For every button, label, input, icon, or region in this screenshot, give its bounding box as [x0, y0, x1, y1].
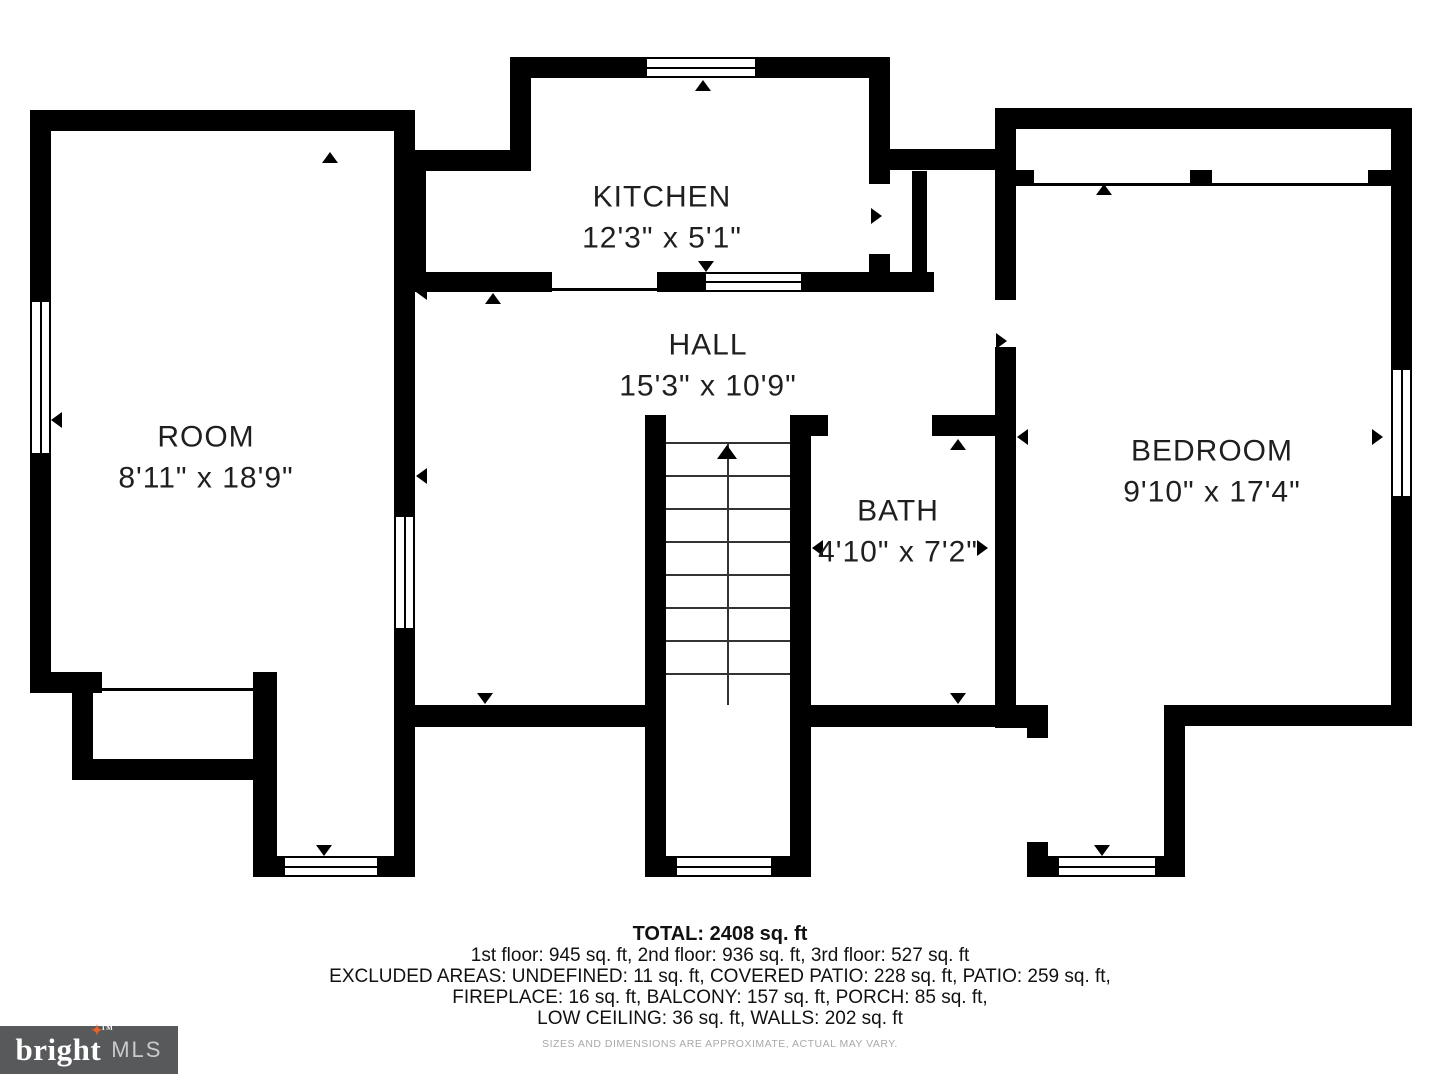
- room-name: KITCHEN: [593, 181, 732, 214]
- partition-line-low-ceiling-line: [1016, 183, 1391, 186]
- kitchen-window-arrow: [698, 261, 714, 272]
- excluded-areas-text-2: FIREPLACE: 16 sq. ft, BALCONY: 157 sq. f…: [0, 987, 1440, 1008]
- bedroom-dims-right-arrow: [1372, 429, 1383, 445]
- area-summary: TOTAL: 2408 sq. ft 1st floor: 945 sq. ft…: [0, 924, 1440, 1050]
- window-pane-line: [404, 517, 406, 628]
- left-porch-arrow: [316, 845, 332, 856]
- wall-bedroom-right-lower: [1391, 498, 1412, 726]
- room-left-window-arrow: [51, 412, 62, 428]
- room-top-door-arrow: [322, 152, 338, 163]
- room-dimensions: 8'11" x 18'9": [118, 462, 293, 496]
- disclaimer-text: SIZES AND DIMENSIONS ARE APPROXIMATE, AC…: [0, 1038, 1440, 1050]
- wall-lowceil-stub-a: [1016, 170, 1034, 183]
- kitchen-bottom-window: [704, 272, 803, 292]
- room-interior-window: [394, 515, 415, 630]
- window-pane-line: [647, 67, 755, 69]
- wall-hall-bottom-left: [415, 705, 645, 727]
- excluded-areas-text-1: EXCLUDED AREAS: UNDEFINED: 11 sq. ft, CO…: [0, 966, 1440, 987]
- bright-mls-logo: bright✦TM MLS: [0, 1026, 178, 1074]
- wall-bedroom-left-lower: [995, 347, 1016, 727]
- wall-vestibule-top: [869, 149, 1016, 170]
- kitchen-right-door-arrow: [871, 208, 882, 224]
- wall-lowceil-stub-b: [1190, 170, 1212, 183]
- bedroom-dims-left-arrow: [1017, 429, 1028, 445]
- partition-line-balcony-open-line: [93, 688, 253, 691]
- window-pane-line: [677, 866, 771, 868]
- window-pane-line: [706, 281, 801, 283]
- window-pane-line: [1059, 866, 1155, 868]
- wall-stair-left: [645, 415, 666, 877]
- room-name: HALL: [668, 329, 747, 362]
- kitchen-top-window: [645, 57, 757, 78]
- room-dimensions: 4'10" x 7'2": [818, 536, 978, 570]
- bedroom-right-window: [1391, 368, 1412, 498]
- room-label-bedroom: BEDROOM9'10" x 17'4": [1123, 435, 1301, 510]
- wall-bedroom-step-v: [1027, 705, 1048, 738]
- wall-room-bottom-step-h: [30, 672, 102, 693]
- wall-stair-right: [790, 415, 811, 877]
- right-porch-arrow: [1094, 845, 1110, 856]
- room-label-room: ROOM8'11" x 18'9": [118, 421, 293, 496]
- room-label-hall: HALL15'3" x 10'9": [619, 329, 797, 404]
- wall-balcony-bottom: [72, 759, 277, 780]
- bedroom-door-arrow: [996, 333, 1007, 349]
- room-label-bath: BATH4'10" x 7'2": [818, 495, 978, 570]
- room-name: ROOM: [157, 421, 254, 454]
- low-ceiling-arrow: [1096, 184, 1112, 195]
- right-porch-window: [1057, 856, 1157, 877]
- wall-bedroom-bottom: [1164, 705, 1412, 726]
- excluded-areas-text-3: LOW CEILING: 36 sq. ft, WALLS: 202 sq. f…: [0, 1008, 1440, 1029]
- bath-bottom-arrow: [950, 693, 966, 704]
- wall-balcony-right: [253, 672, 277, 877]
- bath-dims-right-arrow: [977, 540, 988, 556]
- wall-kitchen-bottom-a: [405, 272, 552, 292]
- room-dimensions: 9'10" x 17'4": [1123, 476, 1301, 510]
- wall-chimney-wall: [912, 171, 927, 276]
- room-dimensions: 12'3" x 5'1": [582, 222, 742, 256]
- window-pane-line: [40, 302, 42, 453]
- left-porch-window: [283, 856, 379, 877]
- window-pane-line: [1401, 370, 1403, 496]
- floor-areas-text: 1st floor: 945 sq. ft, 2nd floor: 936 sq…: [0, 945, 1440, 966]
- bath-top-arrow: [950, 439, 966, 450]
- wall-room-top: [30, 110, 415, 131]
- wall-bath-top-right: [932, 415, 995, 436]
- room-label-kitchen: KITCHEN12'3" x 5'1": [582, 181, 742, 256]
- stair-direction-arrow: [717, 445, 737, 459]
- room-dimensions: 15'3" x 10'9": [619, 370, 797, 404]
- wall-kitchen-bottom-c: [803, 272, 934, 292]
- wall-kitchen-bottom-b: [657, 272, 704, 292]
- wall-room-right-lower: [394, 630, 415, 877]
- wall-hall-bottom-right: [811, 705, 1016, 727]
- kitchen-bottom-door-arrow: [485, 293, 501, 304]
- room-name: BATH: [857, 495, 939, 528]
- wall-kitchen-right-stub-a: [869, 171, 890, 184]
- total-area-text: TOTAL: 2408 sq. ft: [0, 924, 1440, 945]
- partition-line-kitchen-open-line: [552, 288, 657, 291]
- window-pane-line: [285, 866, 377, 868]
- wall-bedroom-right-upper: [1391, 108, 1412, 368]
- floorplan-canvas: KITCHEN12'3" x 5'1"HALL15'3" x 10'9"ROOM…: [0, 0, 1440, 1080]
- room-left-window: [30, 300, 51, 455]
- wall-bath-top-stub: [811, 415, 828, 436]
- kitchen-top-door-arrow: [695, 80, 711, 91]
- logo-brand-text: bright✦TM: [16, 1032, 102, 1068]
- wall-bedroom-left-upper: [995, 108, 1016, 300]
- logo-suffix-text: MLS: [111, 1037, 162, 1063]
- wall-kitchen-left-lower: [405, 150, 426, 292]
- wall-right-porch-right: [1164, 705, 1185, 877]
- stair-center-line: [727, 442, 729, 705]
- entry-porch-window: [675, 856, 773, 877]
- hall-left-lower-arrow: [416, 468, 427, 484]
- hall-bottom-arrow: [477, 693, 493, 704]
- room-name: BEDROOM: [1131, 435, 1293, 468]
- trademark-symbol: TM: [101, 1024, 113, 1032]
- hall-left-upper-arrow: [416, 284, 427, 300]
- wall-lowceil-stub-c: [1368, 170, 1391, 183]
- wall-bedroom-top: [995, 108, 1412, 129]
